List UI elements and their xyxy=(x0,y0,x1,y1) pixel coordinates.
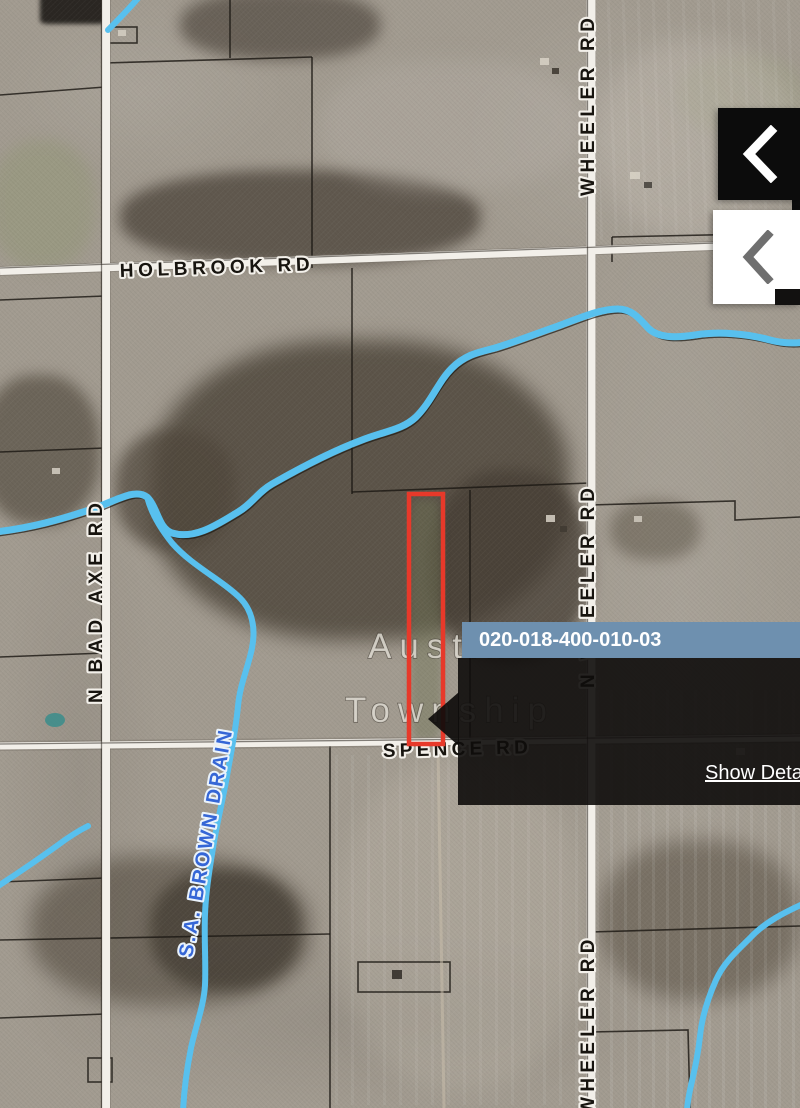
map-feature-layer: Austin Township HOLBROOK RD WHEELER RD N… xyxy=(0,0,800,1108)
creek xyxy=(0,309,800,535)
parcel-popup: Show Details xyxy=(458,658,800,805)
roads xyxy=(0,0,800,1108)
panel-corner xyxy=(775,289,800,305)
stream-top-left xyxy=(108,0,140,30)
chevron-left-icon xyxy=(739,125,779,183)
road-label-wheeler-top: WHEELER RD xyxy=(578,18,599,196)
streams xyxy=(0,0,800,1108)
parcel-popup-title: 020-018-400-010-03 xyxy=(462,622,800,658)
chevron-left-icon xyxy=(739,230,775,284)
map-canvas[interactable]: Austin Township HOLBROOK RD WHEELER RD N… xyxy=(0,0,800,1108)
brown-drain xyxy=(148,500,254,1108)
map-labels: HOLBROOK RD WHEELER RD N WHEELER RD N WH… xyxy=(86,18,599,1108)
collapse-panel-button-dark[interactable] xyxy=(718,108,800,200)
show-details-link[interactable]: Show Details xyxy=(705,762,800,785)
stream-bottom-right xyxy=(687,903,800,1108)
parcel-boundaries xyxy=(0,0,800,1108)
pond xyxy=(45,713,65,727)
road-label-holbrook: HOLBROOK RD xyxy=(119,254,310,282)
road-label-bad-axe: N BAD AXE RD xyxy=(86,503,107,703)
